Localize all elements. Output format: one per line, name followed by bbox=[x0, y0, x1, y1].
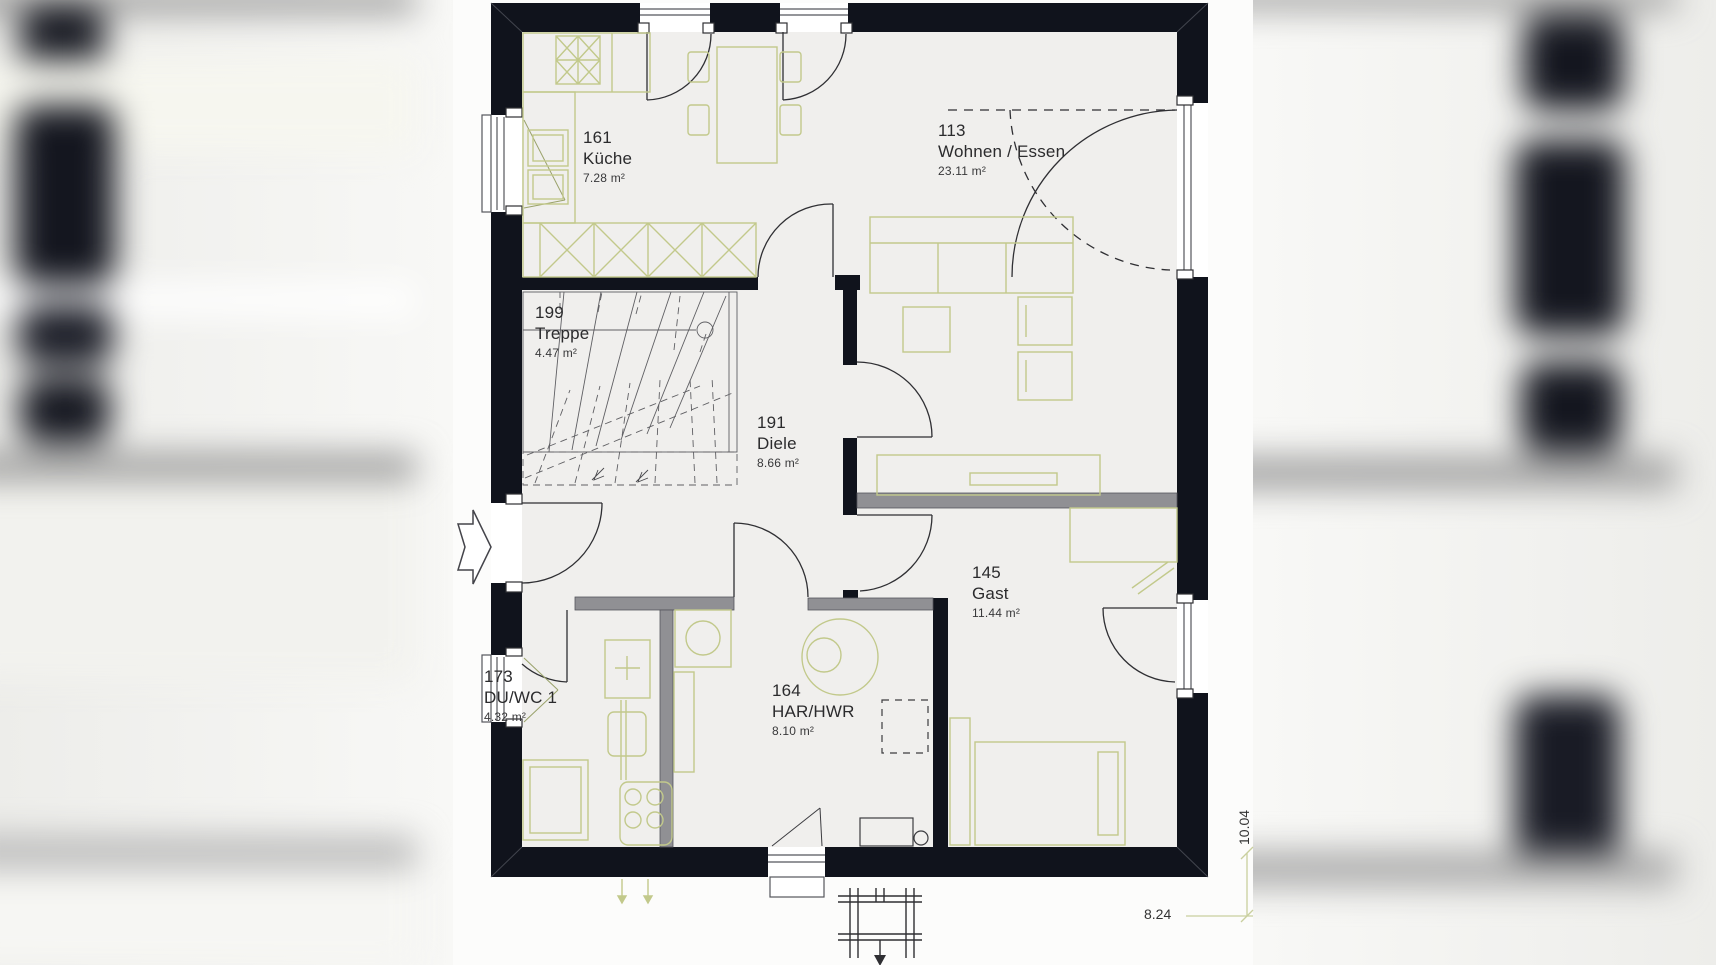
floorplan-svg bbox=[0, 0, 1716, 965]
room-area: 7.28 m² bbox=[583, 171, 632, 186]
room-name: DU/WC 1 bbox=[484, 687, 557, 708]
room-number: 164 bbox=[772, 680, 855, 701]
room-area: 11.44 m² bbox=[972, 606, 1020, 621]
room-area: 8.10 m² bbox=[772, 724, 855, 739]
entrance-arrow-icon bbox=[458, 510, 491, 584]
room-area: 4.47 m² bbox=[535, 346, 589, 361]
screenshot-stage: 161 Küche 7.28 m² 113 Wohnen / Essen 23.… bbox=[0, 0, 1716, 965]
room-label-duwc: 173 DU/WC 1 4.32 m² bbox=[484, 666, 557, 725]
room-label-treppe: 199 Treppe 4.47 m² bbox=[535, 302, 589, 361]
room-number: 145 bbox=[972, 562, 1020, 583]
room-number: 191 bbox=[757, 412, 799, 433]
room-label-wohnen: 113 Wohnen / Essen 23.11 m² bbox=[938, 120, 1065, 179]
room-name: Treppe bbox=[535, 323, 589, 344]
room-label-diele: 191 Diele 8.66 m² bbox=[757, 412, 799, 471]
room-area: 4.32 m² bbox=[484, 710, 557, 725]
room-label-gast: 145 Gast 11.44 m² bbox=[972, 562, 1020, 621]
room-name: Diele bbox=[757, 433, 799, 454]
room-area: 8.66 m² bbox=[757, 456, 799, 471]
room-name: Gast bbox=[972, 583, 1020, 604]
room-label-kueche: 161 Küche 7.28 m² bbox=[583, 127, 632, 186]
room-area: 23.11 m² bbox=[938, 164, 1065, 179]
room-number: 173 bbox=[484, 666, 557, 687]
dimension-depth: 10.04 bbox=[1236, 810, 1252, 845]
room-name: Wohnen / Essen bbox=[938, 141, 1065, 162]
section-marker bbox=[838, 888, 922, 965]
room-label-har: 164 HAR/HWR 8.10 m² bbox=[772, 680, 855, 739]
room-number: 161 bbox=[583, 127, 632, 148]
dimension-width: 8.24 bbox=[1144, 906, 1171, 922]
room-name: Küche bbox=[583, 148, 632, 169]
room-number: 113 bbox=[938, 120, 1065, 141]
room-name: HAR/HWR bbox=[772, 701, 855, 722]
room-number: 199 bbox=[535, 302, 589, 323]
